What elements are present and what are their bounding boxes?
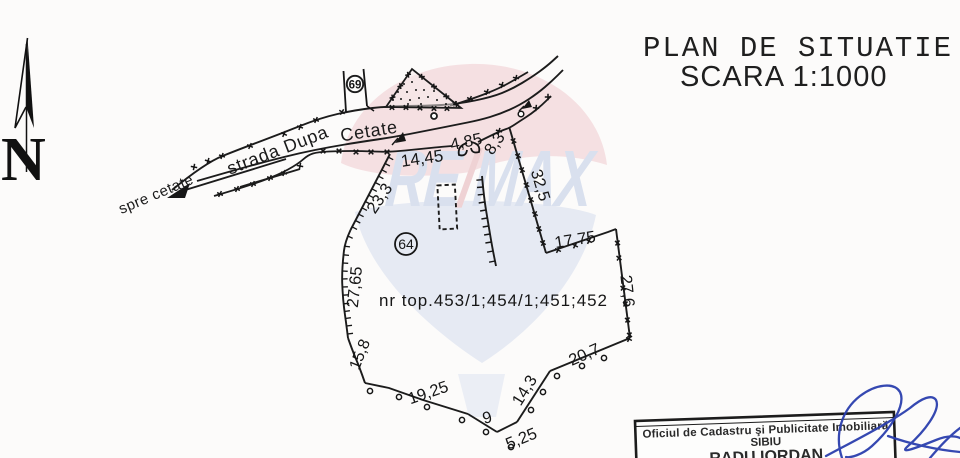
svg-text:SCARA 1:1000: SCARA 1:1000 <box>680 61 889 93</box>
svg-text:64: 64 <box>398 236 414 252</box>
svg-text:SIBIU: SIBIU <box>750 436 781 449</box>
svg-text:N: N <box>1 126 46 194</box>
svg-text:69: 69 <box>349 80 362 92</box>
svg-text:27,6: 27,6 <box>616 274 637 308</box>
svg-text:nr top.453/1;454/1;451;452: nr top.453/1;454/1;451;452 <box>379 291 607 310</box>
